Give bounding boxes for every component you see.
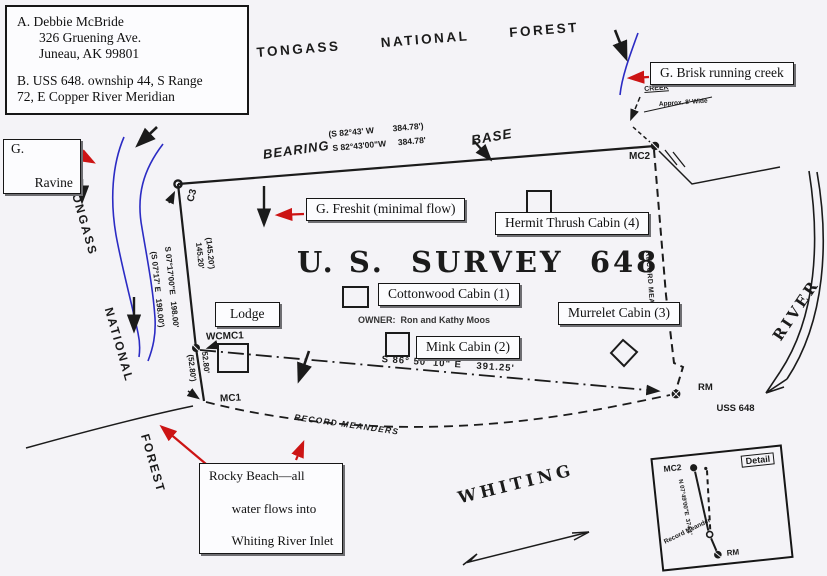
claimant-info-box: A. Debbie McBride 326 Gruening Ave. June…	[5, 5, 249, 115]
murrelet-cabin-symbol	[611, 340, 637, 366]
ravine-line1: G.	[11, 141, 24, 156]
corner-mc1-label: MC1	[220, 392, 242, 404]
brisk-creek-callout: G. Brisk running creek	[650, 62, 794, 85]
flow-arrow-south	[299, 351, 309, 380]
detail-traverse-line-2	[711, 538, 716, 551]
ravine-line2: Ravine	[35, 175, 73, 190]
rocky-beach-callout: Rocky Beach—all water flows into Whiting…	[199, 463, 343, 554]
bearing-base-line	[178, 146, 655, 184]
detail-inset-box: MC2 Detail N 07°49'00"E 374.1' Record Me…	[650, 444, 793, 571]
creek-leader-lower	[633, 127, 650, 142]
ravine-callout: G. Ravine	[3, 139, 81, 194]
detail-mid-point	[706, 531, 713, 538]
creek-leader-upper	[631, 97, 640, 119]
c3-pointer-arrow	[169, 193, 174, 203]
detail-mc2-point	[690, 464, 698, 472]
brisk-leader-arrow	[630, 77, 649, 78]
lodge-symbol	[218, 344, 248, 372]
rocky-leader-arrow-2	[296, 443, 303, 460]
riverbank-line	[659, 151, 780, 184]
creek-note: CREEK Approx. 8' Wide	[644, 82, 708, 110]
record-meanders-dashed-line	[206, 395, 670, 427]
info-line-a3: Juneau, AK 99801	[17, 46, 241, 62]
cottonwood-cabin-callout: Cottonwood Cabin (1)	[378, 283, 520, 306]
info-spacer	[17, 63, 241, 73]
mc1-pointer-arrow	[188, 391, 198, 398]
rocky-line3: Whiting River Inlet	[232, 533, 334, 548]
rocky-leader-arrow-1	[162, 427, 206, 464]
rocky-line1: Rocky Beach—all	[209, 468, 305, 483]
flow-arrow-topleft	[138, 127, 157, 145]
survey-title: U. S. SURVEY 648	[297, 245, 659, 279]
rm-line1: RM	[698, 382, 713, 393]
whiting-arrow-shaft	[463, 532, 589, 565]
hermit-cabin-callout: Hermit Thrush Cabin (4)	[495, 212, 649, 235]
detail-witness-dot	[704, 467, 708, 471]
beach-shoreline	[26, 406, 193, 448]
mink-cabin-symbol	[386, 333, 409, 356]
corner-mc2-label: MC2	[629, 151, 650, 162]
owner-label: OWNER: Ron and Kathy Moos	[358, 315, 490, 325]
river-arrow-outer	[787, 172, 823, 379]
info-line-b2: 72, E Copper River Meridian	[17, 89, 241, 105]
info-line-b1: B. USS 648. ownship 44, S Range	[17, 73, 241, 89]
river-arrow-head	[766, 372, 787, 393]
rm-line2: USS 648	[716, 403, 754, 414]
creek-note-line1: CREEK	[644, 84, 669, 93]
lodge-callout: Lodge	[215, 302, 280, 327]
creek-flow-arrow	[615, 30, 626, 58]
info-line-a1: A. Debbie McBride	[17, 14, 241, 30]
corner-wcmc1-label: WCMC1	[206, 330, 244, 342]
murrelet-cabin-callout: Murrelet Cabin (3)	[558, 302, 680, 325]
hermit-cabin-symbol	[527, 191, 551, 213]
rm-uss648-label: RM USS 648	[698, 383, 755, 414]
freshit-callout: G. Freshit (minimal flow)	[306, 198, 465, 221]
brisk-creek-line	[620, 33, 638, 95]
mink-cabin-callout: Mink Cabin (2)	[416, 336, 520, 359]
detail-mc2-label: MC2	[663, 462, 682, 474]
info-line-a2: 326 Gruening Ave.	[17, 30, 241, 46]
rocky-line2: water flows into	[232, 501, 316, 516]
whiting-arrow	[463, 532, 589, 565]
cottonwood-cabin-symbol	[343, 287, 368, 307]
freshit-leader-arrow	[278, 214, 304, 215]
bank-hatch-marks	[665, 150, 685, 167]
detail-rm-label: RM	[726, 547, 739, 557]
wcmc1-pointer-arrow	[208, 345, 217, 348]
survey-plat-page: A. Debbie McBride 326 Gruening Ave. June…	[0, 0, 827, 576]
